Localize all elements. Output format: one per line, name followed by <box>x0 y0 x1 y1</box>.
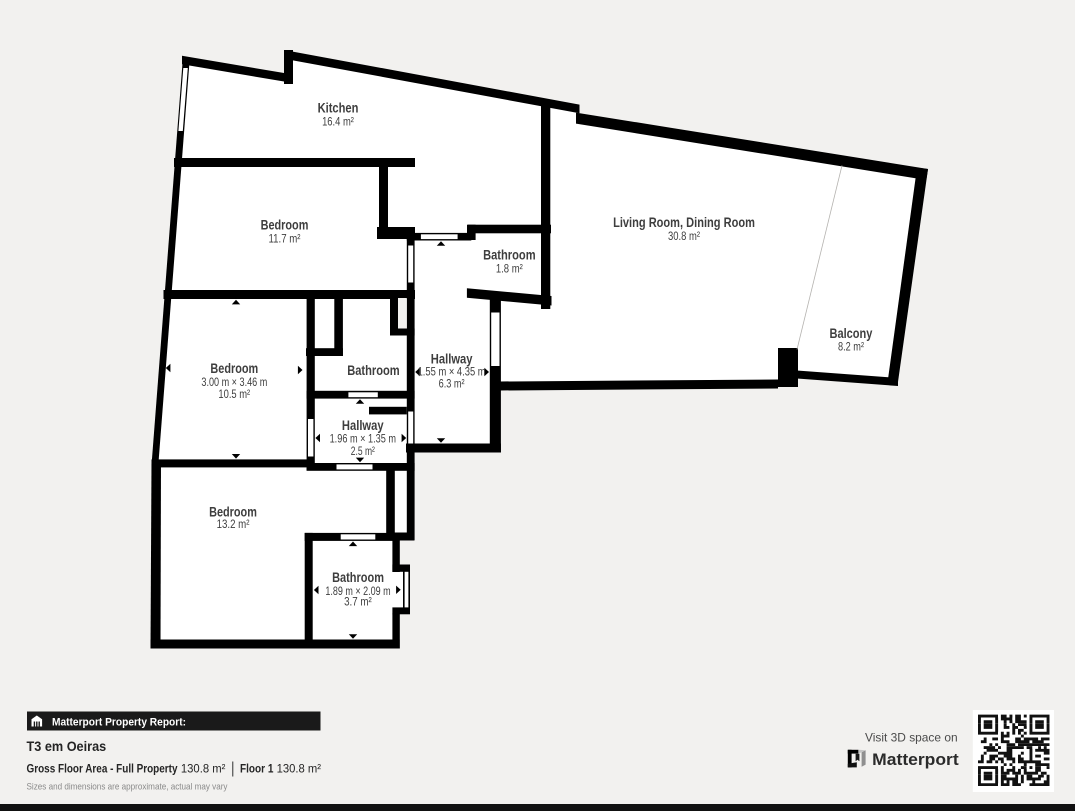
svg-text:8.2 m²: 8.2 m² <box>838 340 864 354</box>
svg-text:Bathroom: Bathroom <box>332 569 384 585</box>
svg-text:2.5 m²: 2.5 m² <box>351 444 375 458</box>
svg-text:Visit 3D space on: Visit 3D space on <box>865 730 958 744</box>
svg-text:T3 em Oeiras: T3 em Oeiras <box>27 739 107 754</box>
svg-text:Hallway: Hallway <box>342 417 384 433</box>
svg-text:Floor 1: Floor 1 <box>240 761 274 775</box>
svg-text:Matterport: Matterport <box>872 750 959 769</box>
svg-text:13.2 m²: 13.2 m² <box>217 517 250 531</box>
svg-text:Bathroom: Bathroom <box>483 247 535 263</box>
svg-text:6.3 m²: 6.3 m² <box>439 377 465 391</box>
svg-text:10.5 m²: 10.5 m² <box>218 387 250 401</box>
svg-text:16.4 m²: 16.4 m² <box>322 115 354 129</box>
svg-text:Gross Floor Area - Full Proper: Gross Floor Area - Full Property <box>27 761 178 775</box>
svg-text:30.8 m²: 30.8 m² <box>668 229 700 243</box>
svg-text:Kitchen: Kitchen <box>318 99 359 115</box>
svg-text:3.7 m²: 3.7 m² <box>344 595 372 609</box>
svg-text:Living Room, Dining Room: Living Room, Dining Room <box>613 214 755 230</box>
svg-text:130.8 m²: 130.8 m² <box>277 761 321 775</box>
svg-text:Matterport Property Report:: Matterport Property Report: <box>52 716 186 728</box>
svg-text:Bedroom: Bedroom <box>210 360 258 376</box>
svg-text:1.8 m²: 1.8 m² <box>496 262 523 276</box>
svg-text:11.7 m²: 11.7 m² <box>269 231 301 245</box>
svg-text:Sizes and dimensions are appro: Sizes and dimensions are approximate, ac… <box>27 781 228 791</box>
svg-text:130.8 m²: 130.8 m² <box>181 761 226 775</box>
svg-text:Bedroom: Bedroom <box>261 216 309 232</box>
svg-text:Bathroom: Bathroom <box>347 362 400 378</box>
